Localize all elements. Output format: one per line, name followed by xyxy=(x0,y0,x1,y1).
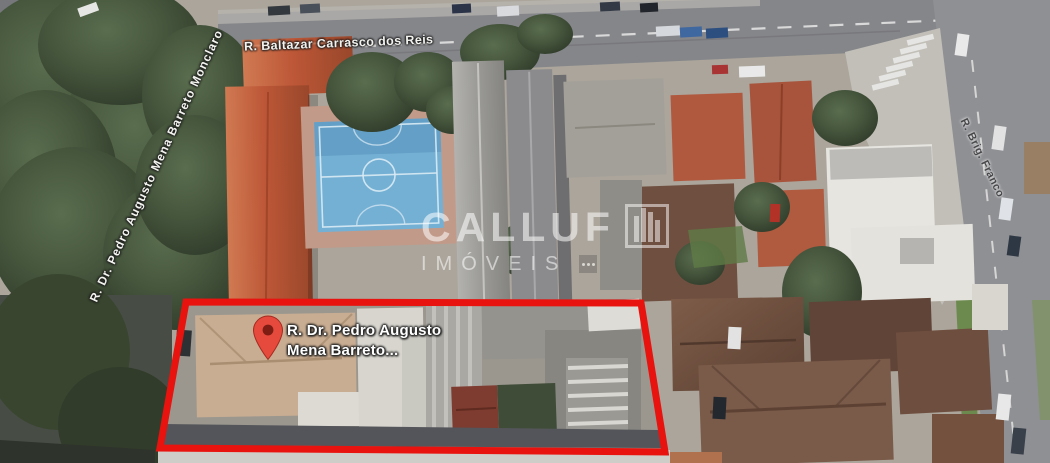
location-pin-icon[interactable] xyxy=(252,315,284,361)
warehouse-roofs xyxy=(452,59,572,307)
aerial-imagery xyxy=(0,0,1050,463)
pin-label-line2: Mena Barreto... xyxy=(287,341,441,361)
aerial-map-view[interactable]: R. Baltazar Carrasco dos Reis R. Dr. Ped… xyxy=(0,0,1050,463)
pin-label-line1: R. Dr. Pedro Augusto xyxy=(287,321,441,341)
pin-label: R. Dr. Pedro Augusto Mena Barreto... xyxy=(287,321,441,360)
bottomleft-trees xyxy=(0,274,182,463)
